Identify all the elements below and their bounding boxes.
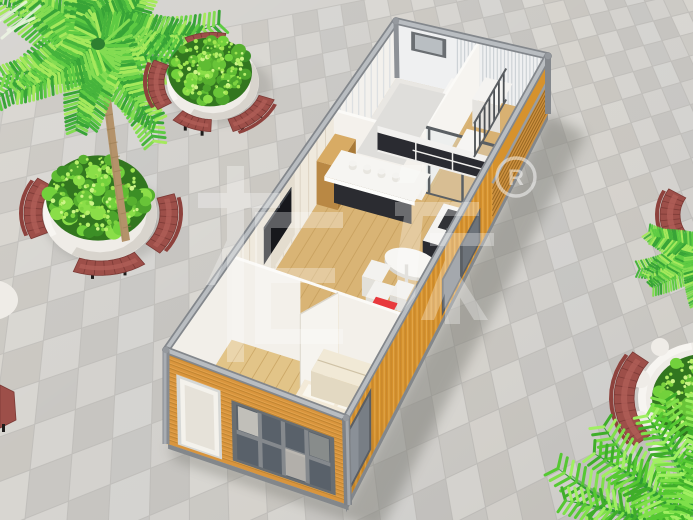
svg-text:R: R: [508, 165, 524, 190]
